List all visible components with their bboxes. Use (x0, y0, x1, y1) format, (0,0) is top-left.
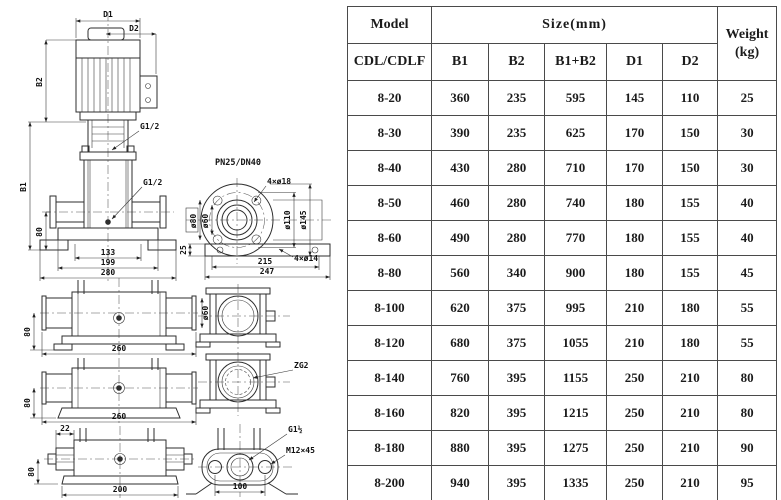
dim-label-22: 22 (60, 424, 70, 433)
dia-60-label-a: ø60 (201, 306, 210, 321)
cell-weight: 30 (718, 151, 777, 186)
dia-60-label: ø60 (201, 214, 210, 229)
cell-b1: 460 (432, 186, 489, 221)
cell-model: 8-200 (348, 466, 432, 500)
table-row: 8-30 390 235 625 170 150 30 (348, 116, 777, 151)
cell-weight: 80 (718, 361, 777, 396)
flange-section-view: PN25/DN40 4×ø18 ø80 ø60 ø110 ø145 25 4×ø… (179, 158, 334, 280)
bolt-callout-base: 4×ø14 (294, 254, 318, 263)
table-row: 8-100 620 375 995 210 180 55 (348, 291, 777, 326)
dim-label-280: 280 (101, 268, 116, 277)
cell-d1: 180 (607, 221, 663, 256)
cell-b1: 390 (432, 116, 489, 151)
cell-b1: 940 (432, 466, 489, 500)
dimension-table: Model Size(mm) Weight (kg) CDL/CDLF B1 B… (347, 6, 777, 500)
table-row: 8-140 760 395 1155 250 210 80 (348, 361, 777, 396)
cell-b1b2: 740 (545, 186, 607, 221)
cell-b2: 235 (489, 116, 545, 151)
dim-label-d1: D1 (103, 10, 113, 19)
cell-d2: 210 (663, 396, 718, 431)
cell-model: 8-140 (348, 361, 432, 396)
flange-rating-label: PN25/DN40 (215, 158, 261, 168)
cell-weight: 30 (718, 116, 777, 151)
cell-model: 8-100 (348, 291, 432, 326)
cell-d1: 210 (607, 291, 663, 326)
cell-d1: 210 (607, 326, 663, 361)
dim-label-80-main: 80 (35, 227, 44, 237)
cell-d2: 210 (663, 361, 718, 396)
header-weight-line1: Weight (726, 27, 769, 42)
cell-weight: 45 (718, 256, 777, 291)
cell-b2: 235 (489, 81, 545, 116)
motor-fins (82, 58, 130, 112)
cell-d1: 145 (607, 81, 663, 116)
port-section-view-2: ZG2 (196, 352, 309, 416)
bolt-label-m12x45: M12×45 (286, 446, 315, 455)
cell-b1: 620 (432, 291, 489, 326)
pump-drawing: D1 D2 B2 B1 80 G1/2 G1/2 (0, 0, 346, 500)
drain-plug (105, 219, 111, 225)
base-view-2: 80 260 (23, 358, 198, 425)
dim-label-25: 25 (179, 245, 188, 255)
cell-b2: 280 (489, 221, 545, 256)
cell-b1: 880 (432, 431, 489, 466)
cell-d2: 155 (663, 186, 718, 221)
cell-model: 8-30 (348, 116, 432, 151)
cell-d2: 110 (663, 81, 718, 116)
cell-weight: 55 (718, 291, 777, 326)
cell-b2: 375 (489, 291, 545, 326)
header-col-d2: D2 (663, 44, 718, 81)
cell-model: 8-180 (348, 431, 432, 466)
cell-weight: 25 (718, 81, 777, 116)
cell-b2: 280 (489, 186, 545, 221)
dim-label-80-b: 80 (23, 398, 32, 408)
cell-b1: 560 (432, 256, 489, 291)
dim-label-b1: B1 (19, 182, 28, 192)
terminal-box (140, 76, 157, 108)
dim-label-80-c: 80 (27, 467, 36, 477)
dia-145-label: ø145 (299, 210, 308, 229)
dim-label-133: 133 (101, 248, 116, 257)
cell-d2: 155 (663, 256, 718, 291)
pump-spec-sheet: D1 D2 B2 B1 80 G1/2 G1/2 (0, 0, 781, 500)
cell-weight: 40 (718, 186, 777, 221)
header-model-sub: CDL/CDLF (348, 44, 432, 81)
dim-label-260-b: 260 (112, 412, 127, 421)
dim-label-d2: D2 (129, 24, 139, 33)
dim-label-b2: B2 (35, 77, 44, 87)
thread-label-g1half: G1½ (288, 424, 303, 434)
cell-weight: 80 (718, 396, 777, 431)
cell-model: 8-20 (348, 81, 432, 116)
cell-model: 8-50 (348, 186, 432, 221)
cell-b1b2: 710 (545, 151, 607, 186)
cell-model: 8-160 (348, 396, 432, 431)
cell-d1: 180 (607, 256, 663, 291)
bolt-callout-top: 4×ø18 (267, 177, 291, 186)
header-model: Model (348, 7, 432, 44)
cell-b2: 280 (489, 151, 545, 186)
dim-label-199: 199 (101, 258, 116, 267)
dim-label-100: 100 (233, 482, 248, 491)
header-col-b1b2: B1+B2 (545, 44, 607, 81)
table-header: Model Size(mm) Weight (kg) CDL/CDLF B1 B… (348, 7, 777, 81)
cell-weight: 95 (718, 466, 777, 500)
dim-label-80-a: 80 (23, 327, 32, 337)
cell-model: 8-40 (348, 151, 432, 186)
cell-d1: 250 (607, 431, 663, 466)
cell-model: 8-120 (348, 326, 432, 361)
header-weight-line2: (kg) (735, 45, 759, 60)
main-elevation-view: D1 D2 B2 B1 80 G1/2 G1/2 (19, 10, 176, 284)
cell-b1: 680 (432, 326, 489, 361)
dim-label-247: 247 (260, 267, 275, 276)
dim-label-260-a: 260 (112, 344, 127, 353)
port-thread-label-top: G1/2 (140, 122, 159, 131)
cell-b1b2: 900 (545, 256, 607, 291)
cell-b1b2: 770 (545, 221, 607, 256)
cell-d2: 180 (663, 326, 718, 361)
port-thread-label-mid: G1/2 (143, 178, 162, 187)
cell-d2: 180 (663, 291, 718, 326)
cell-model: 8-60 (348, 221, 432, 256)
base-view-3: 22 80 200 (27, 424, 196, 498)
cell-d1: 180 (607, 186, 663, 221)
table-row: 8-120 680 375 1055 210 180 55 (348, 326, 777, 361)
cell-b1b2: 995 (545, 291, 607, 326)
dia-110-label: ø110 (283, 210, 292, 229)
cell-model: 8-80 (348, 256, 432, 291)
cell-b1b2: 1055 (545, 326, 607, 361)
header-col-b2: B2 (489, 44, 545, 81)
cell-d1: 170 (607, 151, 663, 186)
cell-b1b2: 625 (545, 116, 607, 151)
table-body: 8-20 360 235 595 145 110 25 8-30 390 235… (348, 81, 777, 500)
cell-d2: 155 (663, 221, 718, 256)
cell-b1: 490 (432, 221, 489, 256)
dim-label-215: 215 (258, 257, 273, 266)
cell-d1: 250 (607, 466, 663, 500)
cell-weight: 90 (718, 431, 777, 466)
cell-b2: 395 (489, 466, 545, 500)
cell-b1: 360 (432, 81, 489, 116)
cell-b2: 395 (489, 396, 545, 431)
cell-b1: 430 (432, 151, 489, 186)
oval-flange-view: G1½ M12×45 100 (186, 424, 315, 497)
cell-b2: 395 (489, 361, 545, 396)
table-row: 8-50 460 280 740 180 155 40 (348, 186, 777, 221)
cell-d2: 150 (663, 116, 718, 151)
header-col-d1: D1 (607, 44, 663, 81)
cell-b1b2: 1155 (545, 361, 607, 396)
dim-label-200: 200 (113, 485, 128, 494)
thread-label-zg2: ZG2 (294, 361, 309, 370)
cell-d2: 210 (663, 431, 718, 466)
cell-b1: 760 (432, 361, 489, 396)
port-section-view-1 (196, 284, 290, 350)
header-weight: Weight (kg) (718, 7, 777, 81)
table-row: 8-40 430 280 710 170 150 30 (348, 151, 777, 186)
cell-d1: 170 (607, 116, 663, 151)
header-size: Size(mm) (432, 7, 718, 44)
cell-b1b2: 1275 (545, 431, 607, 466)
cell-d2: 150 (663, 151, 718, 186)
table-row: 8-60 490 280 770 180 155 40 (348, 221, 777, 256)
table-row: 8-200 940 395 1335 250 210 95 (348, 466, 777, 500)
cell-d1: 250 (607, 361, 663, 396)
header-col-b1: B1 (432, 44, 489, 81)
table-row: 8-20 360 235 595 145 110 25 (348, 81, 777, 116)
table-row: 8-80 560 340 900 180 155 45 (348, 256, 777, 291)
cell-b1b2: 1335 (545, 466, 607, 500)
cell-weight: 55 (718, 326, 777, 361)
cell-b1: 820 (432, 396, 489, 431)
table-row: 8-160 820 395 1215 250 210 80 (348, 396, 777, 431)
cell-d2: 210 (663, 466, 718, 500)
table-row: 8-180 880 395 1275 250 210 90 (348, 431, 777, 466)
cell-weight: 40 (718, 221, 777, 256)
cell-b2: 375 (489, 326, 545, 361)
dia-80-label: ø80 (189, 214, 198, 229)
base-view-1: 80 ø60 260 (23, 278, 210, 357)
cell-d1: 250 (607, 396, 663, 431)
cell-b1b2: 1215 (545, 396, 607, 431)
cell-b2: 395 (489, 431, 545, 466)
cell-b2: 340 (489, 256, 545, 291)
cell-b1b2: 595 (545, 81, 607, 116)
